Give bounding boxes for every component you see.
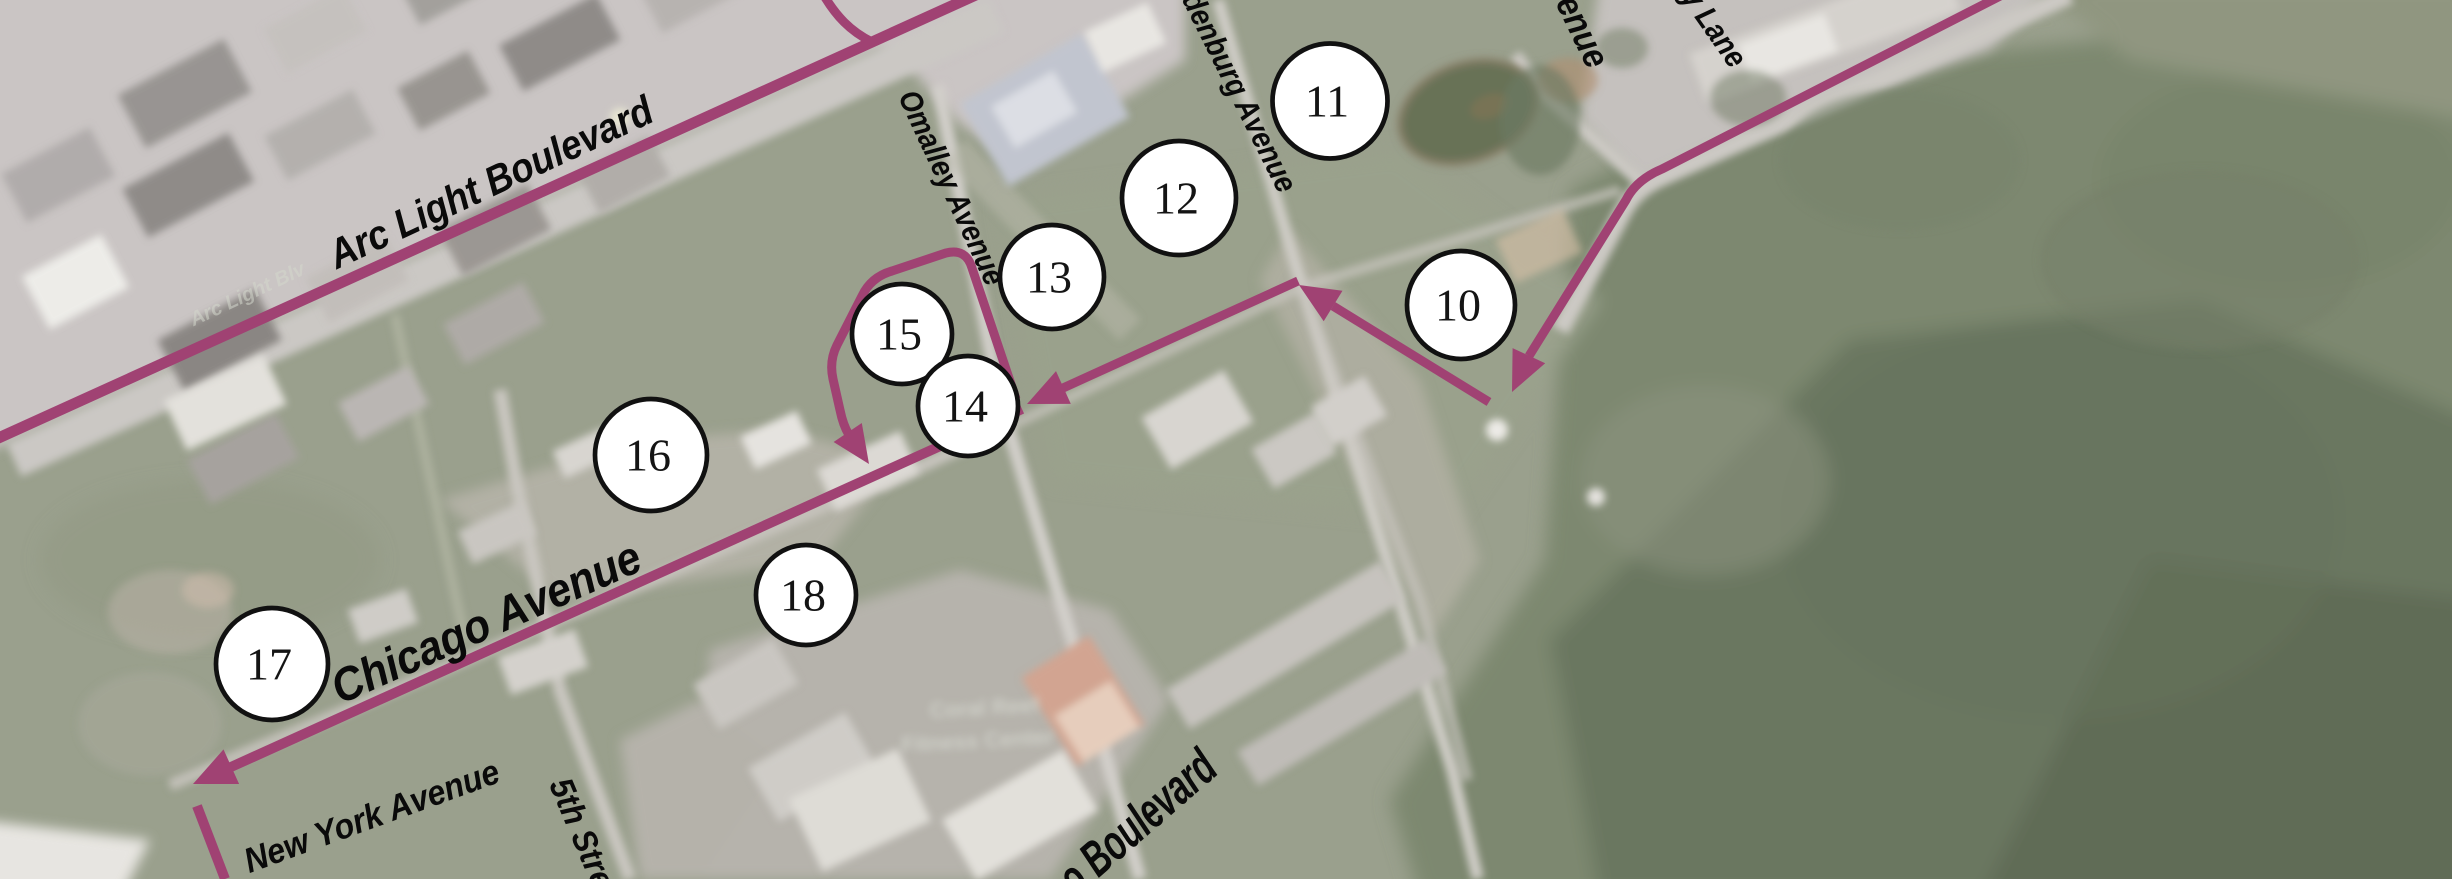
- svg-text:14: 14: [942, 381, 988, 432]
- svg-text:17: 17: [246, 639, 292, 690]
- svg-text:16: 16: [625, 430, 671, 481]
- svg-text:15: 15: [876, 309, 922, 360]
- svg-text:10: 10: [1435, 280, 1481, 331]
- svg-text:18: 18: [780, 570, 826, 621]
- svg-text:13: 13: [1026, 252, 1072, 303]
- svg-text:11: 11: [1305, 76, 1349, 127]
- svg-text:12: 12: [1153, 173, 1199, 224]
